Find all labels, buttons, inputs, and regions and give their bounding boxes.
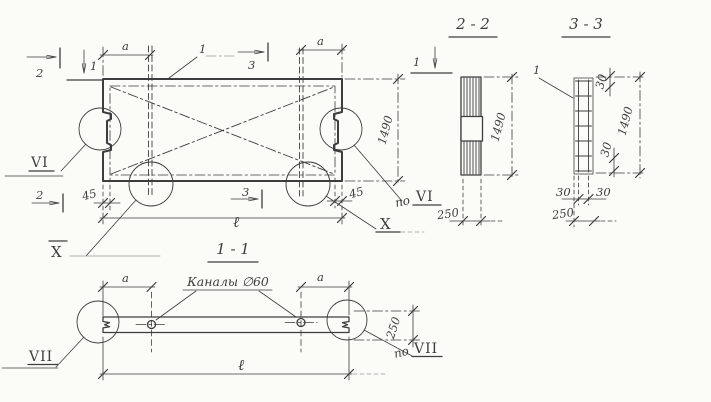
section-mark-1-topleft: 1 [67, 50, 102, 80]
dim-length-plan: ℓ [99, 213, 347, 231]
detail-vi-left-label: VI [30, 155, 49, 171]
dim-a-left-section11-label: a [122, 271, 129, 285]
dim-30-mid-section33: 30 [597, 141, 618, 177]
dim-30-mid-label: 30 [597, 141, 614, 159]
section-2-2-view: 2 - 2 1490 250 [435, 15, 518, 227]
detail-callout-vi-left: VI [5, 144, 86, 176]
dim-30-top-section33: 30 [592, 68, 614, 96]
section-mark-3-top-label: 3 [248, 58, 255, 72]
dim-1490-section22-label: 1490 [488, 111, 509, 143]
dim-length-section11-label: ℓ [238, 356, 244, 374]
detail-callout-vii-right: по VII [364, 330, 442, 361]
dim-250-section33: 250 [550, 176, 616, 227]
section-mark-3-bottom-label: 3 [242, 185, 249, 199]
dim-250-section11: 250 [354, 305, 420, 347]
section-mark-1-topright: 1 [411, 47, 452, 73]
dim-250-section33-label: 250 [550, 205, 575, 222]
dim-1490-section33-label: 1490 [615, 105, 636, 137]
dim-30-30-bottom-section33: 30 30 [556, 176, 611, 205]
section-mark-1-topright-label: 1 [413, 55, 420, 69]
section-1-1-view: 1 - 1 a a Каналы ∅60 [2, 240, 442, 380]
section-mark-2-top: 2 [27, 48, 60, 80]
dim-a-right-section11: a [297, 270, 354, 315]
dim-45-right: 45 [327, 178, 365, 224]
dim-1490-plan: 1490 [345, 74, 405, 186]
section-3-3-view: 3 - 3 1 30 1490 [533, 15, 646, 227]
detail-x-left-label: X [51, 243, 63, 261]
dim-250-section11-label: 250 [383, 315, 403, 341]
detail-circles-1-1 [77, 300, 367, 343]
detail-vi-right-label: VI [415, 189, 434, 205]
detail-vii-right-label: VII [413, 341, 438, 357]
dim-45-left-label: 45 [79, 186, 98, 204]
dim-30-bottom-right-label: 30 [596, 185, 611, 199]
section-3-3-title: 3 - 3 [569, 15, 603, 33]
detail-callout-x-left: X [49, 200, 160, 261]
dim-45-right-label: 45 [346, 184, 365, 202]
dim-45-left: 45 [79, 178, 120, 224]
po-vi-prefix: по [394, 193, 412, 210]
diagonal-centerlines [111, 87, 334, 174]
rebar-callout-section33: 1 [533, 63, 573, 98]
dim-a-left-plan: a [99, 39, 155, 77]
channel-lines [149, 46, 304, 196]
channel-holes [136, 292, 317, 352]
section-2-2-title: 2 - 2 [455, 15, 490, 33]
rebar-callout-section33-label: 1 [533, 63, 540, 77]
section-3-3-mesh [576, 80, 592, 172]
detail-callout-vii-left: VII [2, 337, 84, 368]
blueprint-canvas: VI X по VI X 2 1 [0, 0, 711, 402]
section-mark-2-top-label: 2 [35, 66, 43, 80]
dim-30-top-label: 30 [592, 73, 609, 91]
dim-length-plan-label: ℓ [233, 213, 239, 231]
channels-callout: Каналы ∅60 [156, 274, 296, 320]
dim-a-left-section11: a [99, 271, 157, 316]
dim-a-right-plan-label: a [317, 34, 324, 48]
dim-1490-plan-label: 1490 [375, 114, 396, 146]
detail-callout-vi-right: по VI [354, 145, 441, 210]
section-1-1-title: 1 - 1 [216, 240, 250, 258]
rebar-callout-plan-label: 1 [199, 42, 206, 56]
dim-250-section22-label: 250 [435, 205, 460, 222]
dim-length-section11: ℓ [99, 337, 389, 380]
rebar-callout-plan: 1 [169, 42, 234, 78]
dim-1490-section22: 1490 [484, 73, 518, 180]
section-mark-3-bottom: 3 [231, 185, 262, 208]
section-2-2-recess [461, 117, 483, 142]
section-mark-2-left: 2 [32, 188, 63, 212]
dim-30-bottom-left-label: 30 [556, 185, 571, 199]
channels-label: Каналы ∅60 [186, 274, 269, 289]
po-vii-prefix: по [392, 344, 410, 361]
section-mark-1-topleft-label: 1 [90, 59, 97, 73]
dim-250-section22: 250 [435, 179, 505, 227]
detail-circles [79, 108, 362, 206]
detail-x-right-label: X [380, 215, 392, 233]
dim-a-left-plan-label: a [122, 39, 129, 53]
dim-a-right-plan: a [297, 34, 347, 77]
plan-view: VI X по VI X 2 1 [5, 34, 452, 261]
section-mark-3-top: 3 [238, 43, 268, 72]
detail-vii-left-label: VII [28, 349, 53, 365]
dim-a-right-section11-label: a [317, 270, 324, 284]
section-mark-2-left-label: 2 [35, 188, 43, 202]
